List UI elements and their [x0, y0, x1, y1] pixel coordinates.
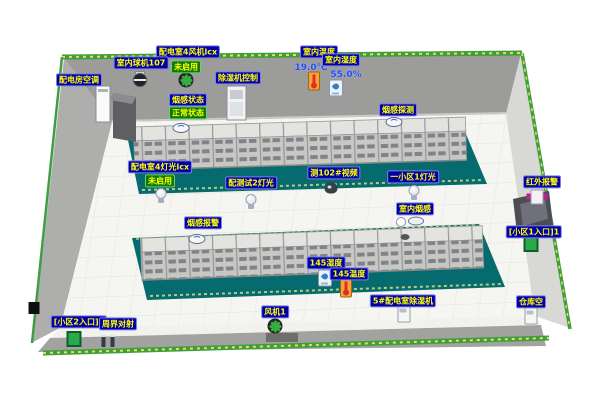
label-lights4[interactable]: 配电室4灯光lcx — [128, 160, 192, 173]
smoke-sensor-dot-icon[interactable] — [396, 217, 406, 227]
label-indoor-smoke[interactable]: 室内烟感 — [396, 202, 434, 215]
status-lights4: 未启用 — [145, 174, 175, 187]
smoke-detector-icon[interactable] — [173, 123, 190, 133]
label-entrance1[interactable]: [小区1入口]1 — [506, 225, 562, 238]
dehumidifier-unit-icon[interactable] — [398, 306, 411, 323]
humidity-icon[interactable] — [329, 80, 343, 97]
wall-junction-box-icon — [29, 302, 40, 314]
smoke-detector-icon[interactable] — [386, 117, 403, 127]
ptz-camera-icon[interactable] — [133, 71, 147, 87]
front-wall-vent — [266, 333, 298, 342]
label-ir-alarm[interactable]: 红外报警 — [523, 175, 561, 188]
label-warehouse-ac[interactable]: 仓库空 — [516, 295, 546, 308]
fan-icon[interactable] — [179, 73, 194, 88]
label-smoke-detect[interactable]: 烟感探测 — [379, 103, 417, 116]
bulb-icon[interactable] — [408, 185, 420, 201]
dome-camera-icon[interactable] — [325, 183, 338, 194]
smoke-detector-icon[interactable] — [189, 234, 206, 244]
label-dehumid-ctrl[interactable]: 除湿机控制 — [215, 71, 261, 84]
status-smoke: 正常状态 — [169, 106, 207, 119]
label-dome-cam107[interactable]: 室内球机107 — [114, 56, 169, 69]
room-scene-svg — [0, 0, 600, 400]
label-smoke-status[interactable]: 烟感状态 — [169, 93, 207, 106]
label-perimeter[interactable]: 周界对射 — [99, 317, 137, 330]
label-indoor-hum[interactable]: 室内湿度 — [322, 53, 360, 66]
thermometer-icon[interactable] — [340, 279, 352, 298]
label-room-ac[interactable]: 配电房空调 — [56, 73, 102, 86]
fan-icon[interactable] — [268, 319, 283, 334]
bulb-icon[interactable] — [245, 194, 257, 210]
label-fan1[interactable]: 风机1 — [261, 305, 289, 318]
scada-3d-room-view: 配电室4风机lcx 未启用 室内球机107 配电房空调 除湿机控制 室内温度 1… — [0, 0, 600, 400]
label-area1-light[interactable]: 一小区1灯光 — [387, 170, 439, 183]
entrance-marker-icon[interactable] — [67, 331, 82, 347]
bulb-icon[interactable] — [155, 188, 167, 204]
label-temp145[interactable]: 145温度 — [330, 267, 369, 280]
beam-posts-icon[interactable] — [101, 335, 118, 347]
label-lights-test2[interactable]: 配测试2灯光 — [225, 176, 277, 189]
status-fan4: 未启用 — [171, 60, 201, 73]
label-dehumid5[interactable]: 5#配电室除湿机 — [370, 294, 436, 307]
label-smoke-alarm[interactable]: 烟感报警 — [184, 216, 222, 229]
thermometer-icon[interactable] — [308, 72, 320, 91]
label-video102[interactable]: 测102#视频 — [307, 166, 360, 179]
warehouse-ac-unit-icon[interactable] — [525, 308, 538, 325]
value-indoor-hum: 55.0% — [330, 70, 361, 80]
cabinet-vent-dot-icon — [401, 234, 410, 240]
smoke-sensor-dish-icon[interactable] — [408, 217, 424, 226]
infrared-sensor-icon[interactable] — [531, 190, 544, 205]
